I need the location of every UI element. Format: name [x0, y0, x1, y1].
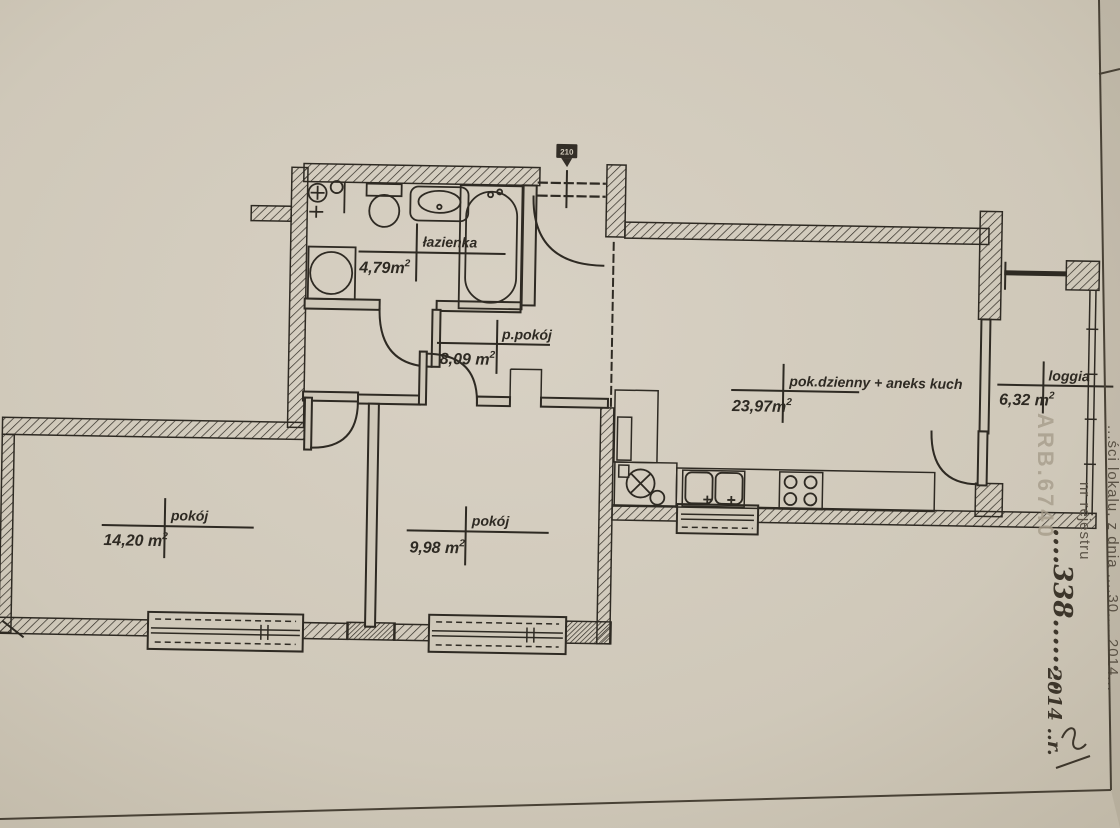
bathroom-south-wall-left: [305, 299, 380, 310]
hall-south-wall-c: [477, 397, 510, 407]
livingroom-right-pier: [978, 211, 1002, 319]
paper-background: [0, 0, 1120, 828]
door-axis-tick: [566, 171, 567, 207]
bathroom-south-wall-right: [437, 301, 521, 312]
room-area-hall: 8,09 m2: [440, 349, 496, 369]
corridor-stub-wall: [251, 206, 291, 222]
handwritten-registry-number: ....338........: [1047, 528, 1077, 691]
door-height-label: 210: [560, 147, 574, 156]
floor-plan-svg: 210 łazienka 4,79m2 p.pokój 8,09 m2 pok.…: [0, 0, 1120, 828]
room-area-large: 14,20 m2: [103, 530, 168, 550]
stamp-text-line2: nr rejestru: [1076, 482, 1093, 561]
room-area-small: 9,98 m2: [409, 537, 465, 557]
room-name-livingroom: pok.dzienny + aneks kuch: [788, 373, 962, 392]
room-area-loggia: 6,32 m2: [999, 390, 1055, 410]
hall-south-wall-b: [358, 394, 420, 404]
hall-south-wall-d: [541, 398, 608, 408]
south-wall-seg1: [0, 617, 148, 636]
room-area-bathroom: 4,79m2: [358, 257, 411, 277]
handwritten-year: 2014 ..r.: [1043, 667, 1065, 756]
loggia-divider: [1004, 273, 1066, 274]
registry-watermark: ARB.6740: [1033, 413, 1058, 540]
scanned-floor-plan-page: 210 łazienka 4,79m2 p.pokój 8,09 m2 pok.…: [0, 0, 1120, 828]
room-large-window: [148, 612, 304, 652]
room-name-small: pokój: [471, 512, 511, 529]
balcony-fixed-glazing: [979, 319, 990, 433]
room-name-loggia: loggia: [1048, 368, 1090, 385]
south-wall-seg2: [303, 623, 348, 640]
entrance-door-pier: [606, 165, 626, 237]
loggia-top-pier: [1066, 261, 1100, 291]
room-area-livingroom: 23,97m2: [731, 396, 793, 416]
room-small-window: [429, 615, 567, 654]
room-name-large: pokój: [170, 507, 210, 524]
room-name-hall: p.pokój: [501, 326, 553, 343]
room-name-bathroom: łazienka: [423, 234, 478, 251]
south-wall-seg3: [394, 624, 430, 641]
